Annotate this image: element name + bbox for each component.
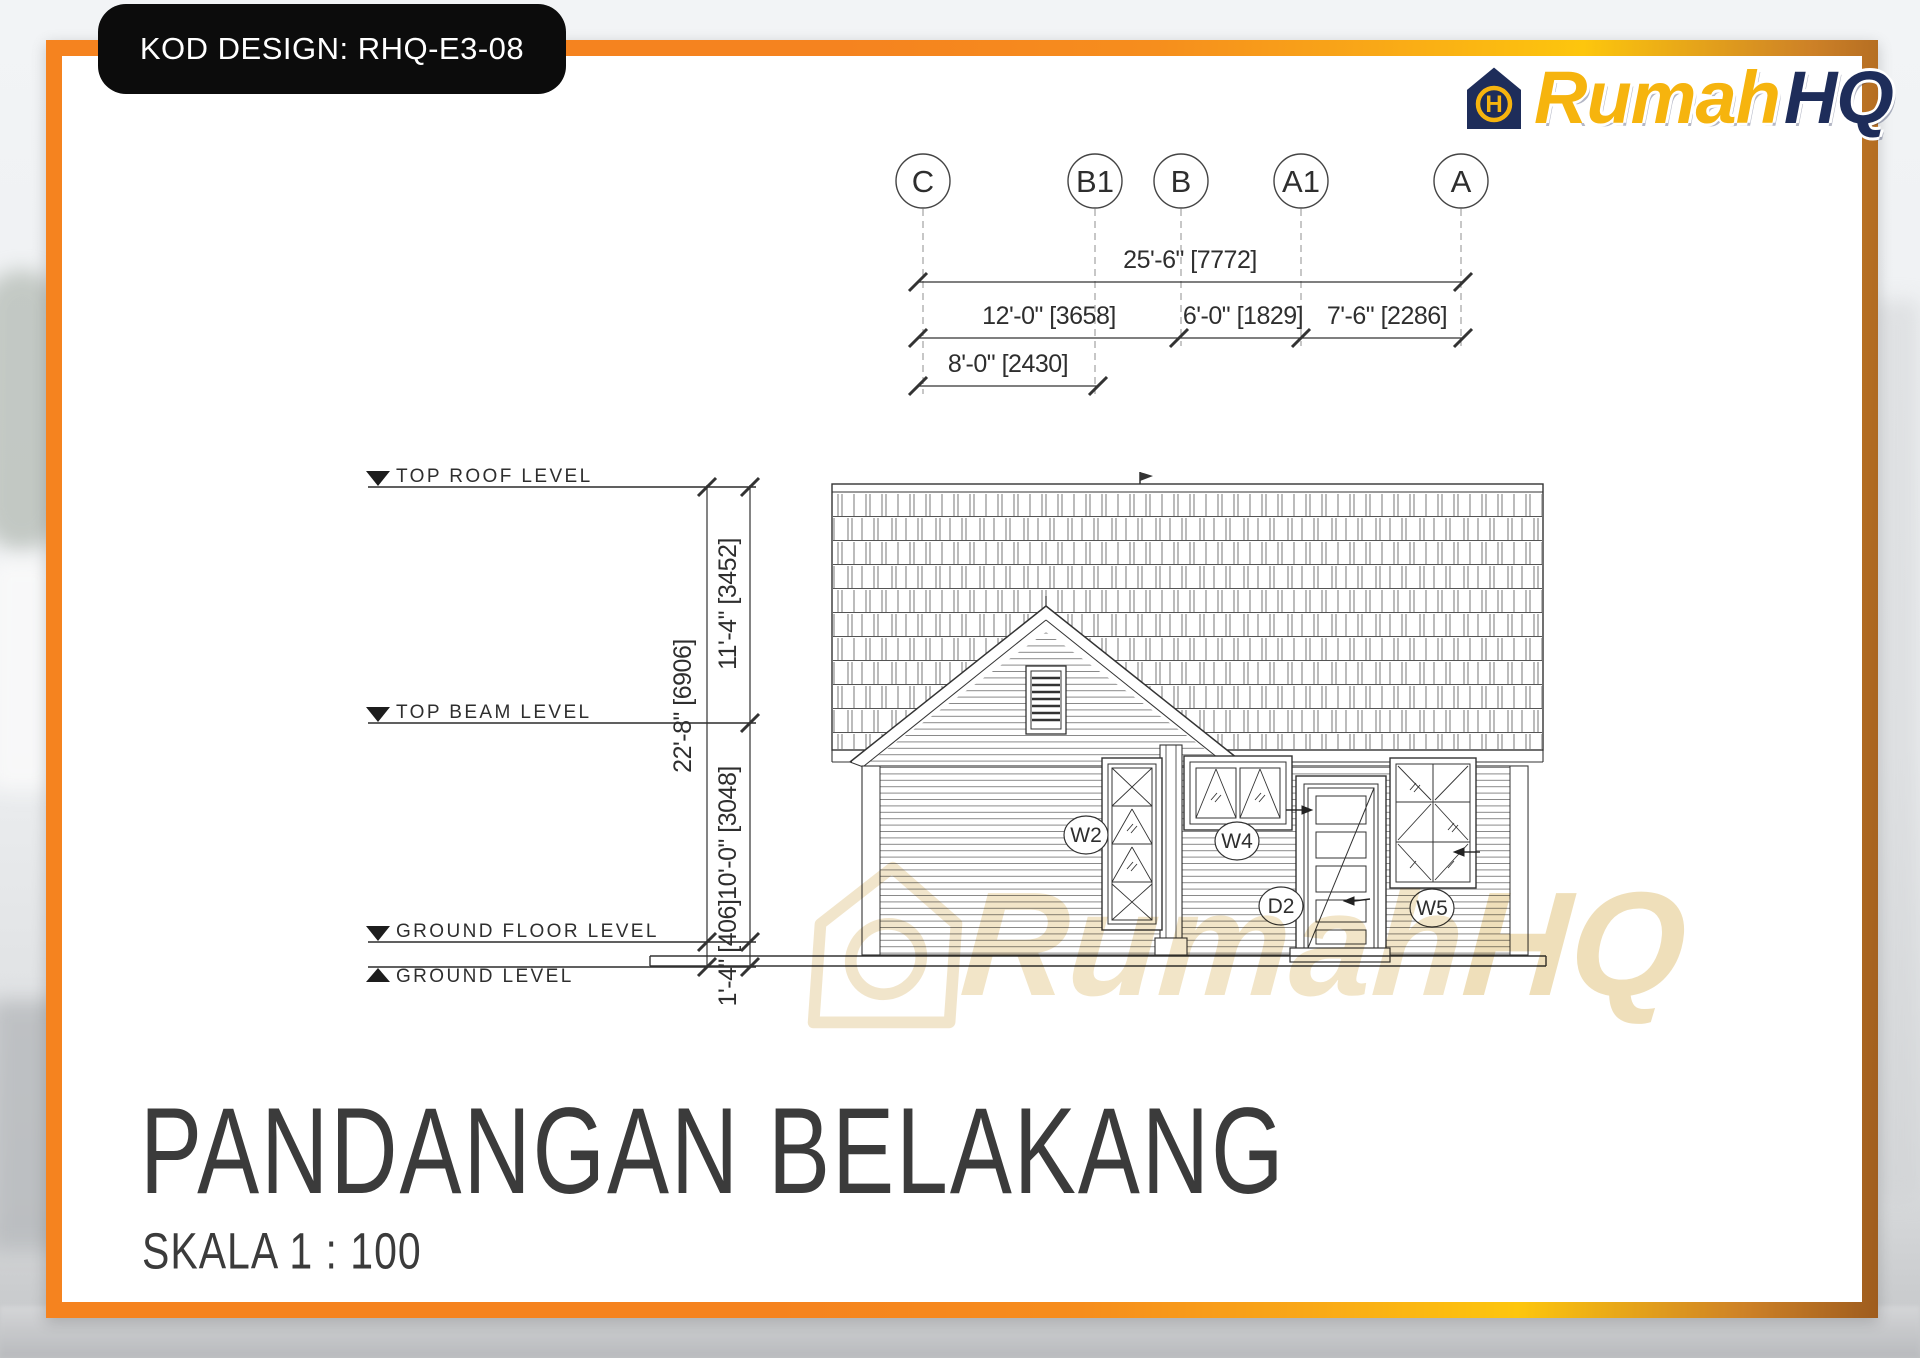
grid-label-a1: A1 (1282, 164, 1320, 199)
page: KOD DESIGN: RHQ-E3-08 H Rumah HQ (0, 0, 1920, 1358)
label-w4: W4 (1221, 830, 1253, 853)
window-w4 (1184, 756, 1292, 830)
ground-line (650, 956, 1546, 966)
vdim-roof-to-beam: 11'-4" [3452] (714, 538, 742, 670)
grid-label-b: B (1171, 164, 1192, 199)
label-d2: D2 (1268, 895, 1295, 918)
horizontal-dimension-texts: 25'-6" [7772] 12'-0" [3658] 6'-0" [1829]… (948, 246, 1447, 378)
level-top-beam: TOP BEAM LEVEL (396, 702, 592, 723)
dim-bay-b-a1: 6'-0" [1829] (1183, 302, 1303, 330)
vdim-overall-height: 22'-8" [6906] (669, 639, 697, 773)
brand-logo: H Rumah HQ (1462, 58, 1893, 138)
brand-name-secondary: HQ (1784, 61, 1893, 135)
drawing-title: PANDANGAN BELAKANG (140, 1090, 1285, 1213)
vdim-beam-to-floor: 10'-0" [3048] (714, 766, 742, 900)
grid-bubbles (896, 154, 1488, 208)
house-hq-logo-icon: H (1462, 62, 1526, 134)
door-d2 (1290, 776, 1390, 962)
dim-bay-c-b: 12'-0" [3658] (982, 302, 1116, 330)
dim-bay-a1-a: 7'-6" [2286] (1327, 302, 1447, 330)
drawing-scale: SKALA 1 : 100 (142, 1222, 422, 1281)
design-code-badge: KOD DESIGN: RHQ-E3-08 (98, 4, 566, 94)
ridge-flag (1140, 472, 1153, 481)
logo-monogram: H (1485, 91, 1502, 118)
gable-louver-vent (1026, 666, 1066, 734)
door-step (1290, 948, 1390, 962)
grid-label-c: C (912, 164, 934, 199)
dim-bay-c-b1: 8'-0" [2430] (948, 350, 1068, 378)
level-labels: TOP ROOF LEVEL TOP BEAM LEVEL GROUND FLO… (396, 466, 659, 987)
level-lines (368, 487, 756, 967)
grid-label-b1: B1 (1076, 164, 1114, 199)
level-ground-floor: GROUND FLOOR LEVEL (396, 921, 659, 942)
window-w5 (1390, 758, 1476, 888)
window-w2 (1102, 758, 1162, 930)
design-code-label: KOD DESIGN: RHQ-E3-08 (140, 31, 524, 67)
label-w2: W2 (1070, 824, 1102, 847)
level-ground: GROUND LEVEL (396, 966, 574, 987)
label-w5: W5 (1416, 897, 1448, 920)
title-block: PANDANGAN BELAKANG SKALA 1 : 100 (140, 1090, 1285, 1183)
level-markers (366, 471, 390, 982)
grid-label-a: A (1451, 164, 1472, 199)
brand-name-primary: Rumah (1534, 61, 1780, 135)
dim-overall: 25'-6" [7772] (1123, 246, 1257, 274)
vertical-dimension-texts: 11'-4" [3452] 22'-8" [6906] 10'-0" [3048… (669, 538, 742, 1006)
level-top-roof: TOP ROOF LEVEL (396, 466, 593, 487)
vdim-floor-to-ground: 1'-4" [406] (714, 900, 742, 1007)
